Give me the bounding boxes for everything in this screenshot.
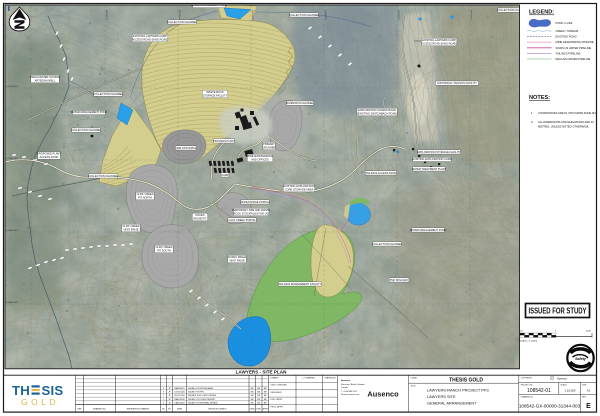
svg-text:CLIFF CREEK: CLIFF CREEK bbox=[156, 245, 173, 249]
svg-text:PROJ. APPR.: PROJ. APPR. bbox=[271, 406, 284, 409]
svg-text:FRESH WATER SOURCE: FRESH WATER SOURCE bbox=[30, 75, 61, 79]
svg-text:CHKD: CHKD bbox=[249, 409, 255, 411]
svg-text:COLLECTION CHANNEL: COLLECTION CHANNEL bbox=[88, 174, 118, 178]
svg-text:CREEK / STREAM: CREEK / STREAM bbox=[556, 29, 579, 33]
svg-text:Vancouver, British Columbia: Vancouver, British Columbia bbox=[341, 383, 366, 386]
svg-text:29APR2020: 29APR2020 bbox=[324, 376, 336, 379]
svg-text:T +1 604 684 9311: T +1 604 684 9311 bbox=[341, 391, 357, 393]
svg-text:COLLECTION CHANNEL: COLLECTION CHANNEL bbox=[71, 128, 101, 132]
svg-text:ISSUED FOR CLIENT REVIEW: ISSUED FOR CLIENT REVIEW bbox=[188, 399, 215, 401]
svg-text:PROCESS PLANT: PROCESS PLANT bbox=[213, 139, 235, 143]
svg-text:SURPLUS WATER PIPELINE: SURPLUS WATER PIPELINE bbox=[556, 46, 592, 50]
svg-text:CLIFF CREEK: CLIFF CREEK bbox=[123, 224, 140, 228]
svg-text:TH: TH bbox=[12, 383, 30, 398]
svg-text:J. O’FARRELL: J. O’FARRELL bbox=[302, 376, 316, 379]
svg-text:COLLECTION CHANNEL: COLLECTION CHANNEL bbox=[93, 92, 123, 96]
svg-text:MINE MAINTENANCE: MINE MAINTENANCE bbox=[247, 154, 273, 158]
svg-text:WATER TREATMENT PLANT: WATER TREATMENT PLANT bbox=[412, 167, 447, 171]
svg-text:LAWYERS - SITE PLAN: LAWYERS - SITE PLAN bbox=[236, 370, 287, 375]
svg-text:ACCESS ROAD (KING ROAD): ACCESS ROAD (KING ROAD) bbox=[132, 38, 168, 42]
svg-text:EXISTING LAWYERS CAMP: EXISTING LAWYERS CAMP bbox=[422, 38, 456, 42]
svg-text:CLIENT: CLIENT bbox=[411, 377, 419, 379]
svg-text:6,3370,000 N: 6,3370,000 N bbox=[6, 86, 19, 88]
svg-text:DATE: DATE bbox=[177, 408, 183, 411]
svg-text:STORAGE FACILITY: STORAGE FACILITY bbox=[203, 94, 228, 98]
svg-text:6,3360,000 N: 6,3360,000 N bbox=[6, 158, 19, 160]
svg-text:A1: A1 bbox=[587, 389, 591, 393]
svg-text:6347000 E: 6347000 E bbox=[470, 10, 472, 20]
svg-text:(EXISTING SWITCHBACK ROAD): (EXISTING SWITCHBACK ROAD) bbox=[357, 112, 397, 116]
svg-text:COLLECTION CHANNEL: COLLECTION CHANNEL bbox=[372, 242, 402, 246]
svg-text:ACCESS ROAD: ACCESS ROAD bbox=[40, 155, 59, 159]
svg-text:28AUG2020: 28AUG2020 bbox=[174, 398, 184, 401]
svg-text:WATER MANAGEMENT POND: WATER MANAGEMENT POND bbox=[410, 228, 447, 232]
svg-text:CRUSHER: CRUSHER bbox=[263, 146, 276, 150]
svg-text:2.: 2. bbox=[531, 120, 533, 124]
svg-text:SCALE: SCALE bbox=[561, 384, 568, 387]
svg-text:PROPOSED PLANT: PROPOSED PLANT bbox=[37, 152, 61, 156]
svg-text:DESIGNED: DESIGNED bbox=[271, 392, 282, 394]
svg-text:EXISTING LAWYERS CAMP: EXISTING LAWYERS CAMP bbox=[133, 34, 167, 38]
svg-text:14AUG2020: 14AUG2020 bbox=[174, 402, 184, 405]
svg-text:DISC. APPR.: DISC. APPR. bbox=[271, 398, 284, 401]
svg-text:ACCESS ROAD (KING ROAD): ACCESS ROAD (KING ROAD) bbox=[421, 42, 457, 46]
svg-text:DUKES RIDGE PORTAL: DUKES RIDGE PORTAL bbox=[241, 200, 270, 204]
svg-text:Safety: Safety bbox=[575, 357, 587, 361]
svg-text:0: 0 bbox=[163, 403, 164, 405]
svg-text:REVISION DETAILS: REVISION DETAILS bbox=[208, 408, 227, 411]
svg-text:6325100 E: 6325100 E bbox=[251, 10, 253, 20]
svg-text:3: 3 bbox=[163, 392, 164, 394]
svg-text:GENERAL ARRANGEMENT: GENERAL ARRANGEMENT bbox=[427, 401, 477, 406]
svg-text:GOLD: GOLD bbox=[21, 397, 59, 407]
svg-text:ORE STOCKPILE: ORE STOCKPILE bbox=[176, 146, 197, 150]
svg-text:MINE DEWATERING PIPELINE: MINE DEWATERING PIPELINE bbox=[556, 40, 594, 44]
svg-text:ENG: ENG bbox=[257, 409, 262, 411]
svg-text:Ausenco: Ausenco bbox=[341, 379, 351, 382]
svg-text:TAILINGS ACCESS ROAD: TAILINGS ACCESS ROAD bbox=[365, 171, 396, 175]
svg-text:E: E bbox=[586, 403, 591, 410]
svg-text:ISSUED FOR PFS RELEASE: ISSUED FOR PFS RELEASE bbox=[188, 387, 214, 390]
svg-text:1:10,000: 1:10,000 bbox=[565, 389, 576, 393]
svg-text:WATER MANAGEMENT POND: WATER MANAGEMENT POND bbox=[71, 110, 108, 114]
svg-text:TAILINGS PIPELINE: TAILINGS PIPELINE bbox=[556, 51, 581, 55]
svg-text:LAWYERS SITE: LAWYERS SITE bbox=[427, 394, 456, 399]
svg-text:VENT RAISE: VENT RAISE bbox=[229, 259, 245, 263]
svg-text:6,3360,000 N: 6,3360,000 N bbox=[6, 230, 19, 232]
svg-text:EXPLORATION ACCESS ROAD: EXPLORATION ACCESS ROAD bbox=[358, 108, 396, 112]
svg-text:NOTES:: NOTES: bbox=[529, 95, 550, 101]
svg-text:WASTE ROCK: WASTE ROCK bbox=[206, 90, 224, 94]
svg-text:DUKES: DUKES bbox=[196, 213, 205, 217]
svg-text:COLLECTION CHANNEL: COLLECTION CHANNEL bbox=[289, 13, 319, 17]
svg-text:DIVERSION CHANNEL: DIVERSION CHANNEL bbox=[286, 101, 314, 105]
svg-text:ISSUED FOR PFS: ISSUED FOR PFS bbox=[188, 392, 204, 394]
svg-text:EXISTING ROAD: EXISTING ROAD bbox=[556, 35, 577, 39]
svg-text:DRAWING No.: DRAWING No. bbox=[521, 396, 534, 399]
svg-text:EXISTING EXPLORATION CAMP: EXISTING EXPLORATION CAMP bbox=[412, 157, 452, 161]
svg-text:DUKES RIDGE: DUKES RIDGE bbox=[228, 255, 246, 259]
svg-text:DRAWING No.: DRAWING No. bbox=[93, 408, 107, 411]
svg-text:METRES, UNLESS NOTED OTHERWISE: METRES, UNLESS NOTED OTHERWISE. bbox=[538, 125, 590, 129]
svg-text:1: 1 bbox=[163, 399, 164, 401]
svg-text:ARTESIAN WELL: ARTESIAN WELL bbox=[35, 79, 56, 83]
svg-text:REFERENCE DRAWING: REFERENCE DRAWING bbox=[127, 408, 150, 411]
svg-text:COORDINATES ARE IN UTM NAD83 Z: COORDINATES ARE IN UTM NAD83 ZONE 9N. bbox=[538, 111, 596, 115]
svg-text:6339700 E: 6339700 E bbox=[397, 10, 399, 20]
svg-text:6,3350,000 N: 6,3350,000 N bbox=[6, 302, 19, 304]
svg-text:CLIFF CREEK PORTAL: CLIFF CREEK PORTAL bbox=[228, 218, 256, 222]
svg-text:28APR2021: 28APR2021 bbox=[174, 387, 184, 390]
svg-text:500m: 500m bbox=[586, 331, 591, 333]
svg-text:ISSUED FOR INTERNAL REVIEW: ISSUED FOR INTERNAL REVIEW bbox=[188, 402, 218, 405]
svg-text:SCALE = 1:10000: SCALE = 1:10000 bbox=[520, 340, 538, 343]
svg-text:4: 4 bbox=[163, 388, 164, 390]
svg-text:LAWYERS-RANCH PROJECT PFS: LAWYERS-RANCH PROJECT PFS bbox=[427, 387, 489, 392]
svg-text:Ausenco: Ausenco bbox=[557, 376, 568, 380]
svg-text:EXPLORATION STORAGE FACILITY: EXPLORATION STORAGE FACILITY bbox=[417, 150, 461, 154]
svg-text:VENT RAISE: VENT RAISE bbox=[123, 228, 139, 232]
svg-text:108542-01: 108542-01 bbox=[527, 388, 551, 394]
svg-text:HISTORICAL TAILINGS FACILITY: HISTORICAL TAILINGS FACILITY bbox=[437, 81, 477, 85]
svg-text:COLLECTION CHANNEL: COLLECTION CHANNEL bbox=[167, 20, 197, 24]
svg-text:CAMP: CAMP bbox=[221, 173, 229, 177]
svg-text:SIZE: SIZE bbox=[582, 385, 587, 387]
svg-text:SIS: SIS bbox=[42, 383, 64, 398]
svg-text:6310500 E: 6310500 E bbox=[105, 10, 107, 20]
svg-text:RIDGE PIT: RIDGE PIT bbox=[194, 217, 207, 221]
svg-text:TITLE: TITLE bbox=[411, 386, 417, 388]
svg-text:108542-GX-00000-31344-003: 108542-GX-00000-31344-003 bbox=[519, 404, 581, 409]
svg-text:W www.ausenco.com: W www.ausenco.com bbox=[341, 394, 359, 396]
svg-text:2: 2 bbox=[163, 395, 164, 397]
svg-text:No.: No. bbox=[162, 409, 166, 411]
svg-text:DWG. CHECKED: DWG. CHECKED bbox=[271, 385, 288, 387]
svg-text:EXISTING EXPLORATION: EXISTING EXPLORATION bbox=[283, 184, 314, 188]
svg-text:TAILINGS MANAGEMENT FACILITY: TAILINGS MANAGEMENT FACILITY bbox=[279, 282, 322, 286]
svg-text:1.: 1. bbox=[531, 111, 533, 115]
svg-text:RECLAIM WATER PIPELINE: RECLAIM WATER PIPELINE bbox=[556, 57, 591, 61]
svg-text:ALL DIMENSIONS AND ELEVATIONS: ALL DIMENSIONS AND ELEVATIONS ARE IN bbox=[538, 120, 594, 124]
svg-text:6317800 E: 6317800 E bbox=[178, 10, 180, 20]
svg-text:APPR: APPR bbox=[262, 408, 268, 411]
svg-text:LEGEND:: LEGEND: bbox=[529, 10, 554, 16]
svg-text:Ausenco: Ausenco bbox=[367, 390, 399, 399]
svg-text:CORE STORAGE AREA: CORE STORAGE AREA bbox=[285, 188, 314, 192]
svg-text:PIT NORTH: PIT NORTH bbox=[138, 196, 152, 200]
svg-text:Canada: Canada bbox=[341, 387, 349, 389]
svg-text:05OCT2020: 05OCT2020 bbox=[174, 395, 184, 397]
svg-text:TMF SPILLWAY: TMF SPILLWAY bbox=[390, 278, 409, 282]
svg-text:ROCK STOCKPILES FOR UG: ROCK STOCKPILES FOR UG bbox=[233, 212, 268, 216]
svg-text:THESIS GOLD: THESIS GOLD bbox=[449, 378, 483, 384]
svg-text:ISSUED FOR STUDY: ISSUED FOR STUDY bbox=[529, 305, 587, 315]
svg-text:PIT SOUTH: PIT SOUTH bbox=[157, 249, 171, 253]
svg-text:CLIFF CREEK: CLIFF CREEK bbox=[137, 192, 154, 196]
svg-text:AND OFFICES: AND OFFICES bbox=[251, 158, 269, 162]
svg-text:DRAWN: DRAWN bbox=[271, 376, 279, 379]
svg-text:PROJECT No.: PROJECT No. bbox=[521, 385, 534, 387]
svg-text:TEMPORARY ORE AND WASTE: TEMPORARY ORE AND WASTE bbox=[232, 208, 271, 212]
svg-text:6332400 E: 6332400 E bbox=[324, 10, 326, 20]
svg-text:POND / LAKE: POND / LAKE bbox=[556, 21, 573, 25]
svg-text:PRIMARY: PRIMARY bbox=[263, 142, 275, 146]
svg-text:REVISED FOR CLIENT REVIEW: REVISED FOR CLIENT REVIEW bbox=[188, 395, 216, 397]
svg-text:COPYRIGHT: COPYRIGHT bbox=[521, 378, 533, 380]
svg-text:13OCT2020: 13OCT2020 bbox=[174, 392, 184, 394]
